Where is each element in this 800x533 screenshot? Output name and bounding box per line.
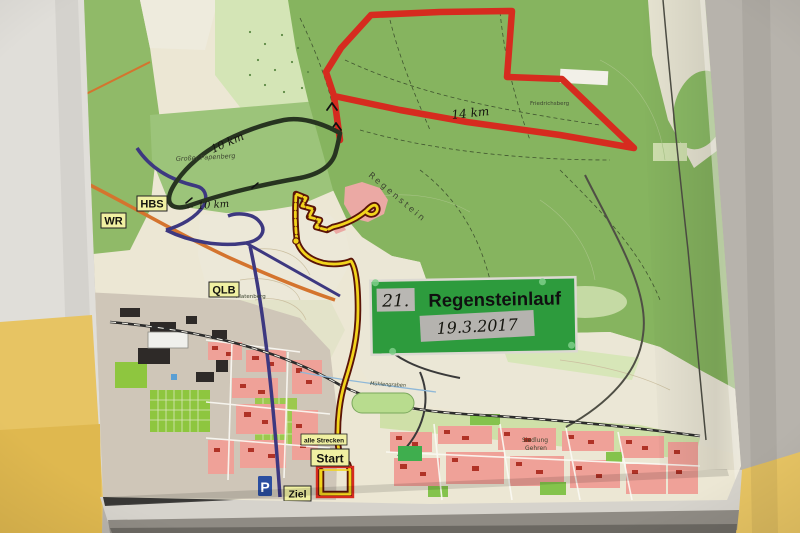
map-photo-canvas: Großer Papenberg Regenstein Platenberg F… <box>0 0 800 533</box>
photo-of-course-map: Großer Papenberg Regenstein Platenberg F… <box>0 0 800 533</box>
photo-vignette <box>0 0 800 533</box>
